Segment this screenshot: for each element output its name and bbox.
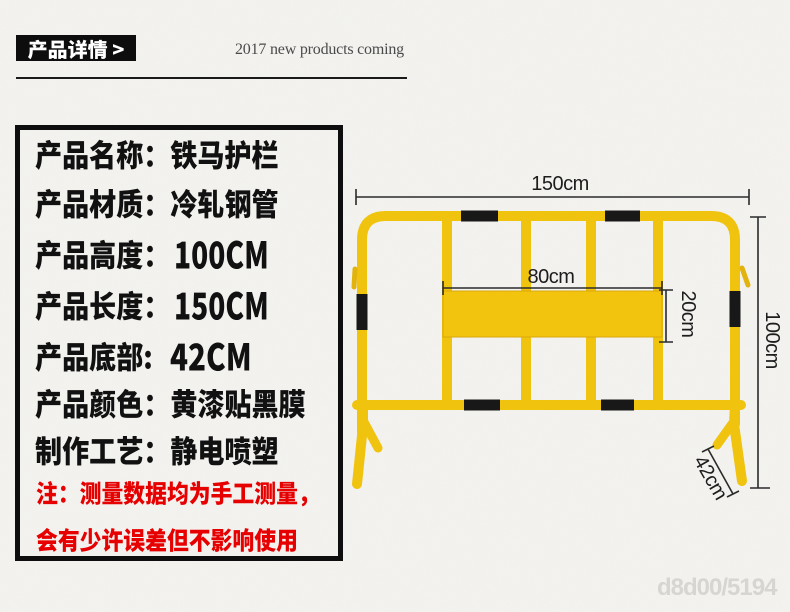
- svg-text:100cm: 100cm: [761, 311, 783, 369]
- svg-text:150cm: 150cm: [531, 173, 589, 195]
- svg-text:42cm: 42cm: [689, 452, 732, 504]
- svg-text:80cm: 80cm: [528, 266, 575, 288]
- svg-text:20cm: 20cm: [677, 291, 699, 338]
